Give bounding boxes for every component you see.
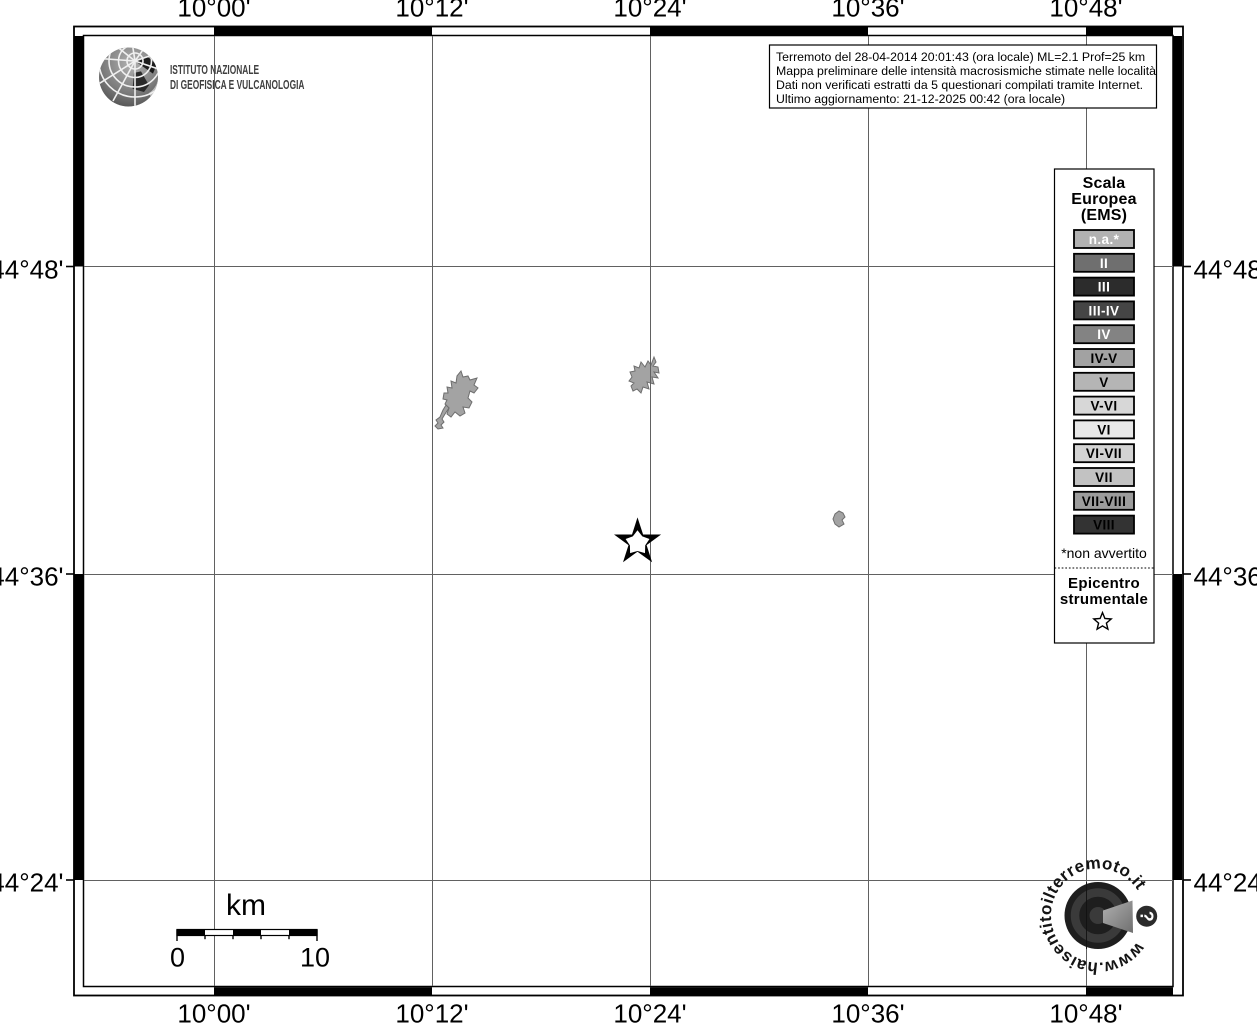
svg-text:VIII: VIII	[1093, 518, 1115, 533]
svg-text:10°24': 10°24'	[613, 0, 686, 23]
svg-text:VI: VI	[1097, 422, 1111, 437]
svg-text:?: ?	[1136, 911, 1156, 922]
svg-text:ISTITUTO NAZIONALE: ISTITUTO NAZIONALE	[170, 63, 259, 77]
svg-text:Mappa preliminare delle intens: Mappa preliminare delle intensità macros…	[776, 64, 1156, 78]
svg-text:0: 0	[170, 943, 185, 973]
svg-text:10°12': 10°12'	[395, 0, 468, 23]
svg-text:Ultimo aggiornamento: 21-12-20: Ultimo aggiornamento: 21-12-2025 00:42 (…	[776, 92, 1065, 106]
svg-text:III-IV: III-IV	[1089, 303, 1120, 318]
svg-text:44°48': 44°48'	[0, 255, 64, 285]
svg-text:44°36': 44°36'	[1194, 562, 1257, 592]
svg-text:V-VI: V-VI	[1090, 399, 1117, 414]
svg-text:Scala: Scala	[1083, 175, 1126, 192]
svg-text:Epicentro: Epicentro	[1068, 575, 1140, 592]
svg-text:VI-VII: VI-VII	[1086, 446, 1122, 461]
svg-text:IV: IV	[1097, 327, 1111, 342]
svg-text:10°48': 10°48'	[1049, 999, 1122, 1025]
svg-text:44°48': 44°48'	[1194, 255, 1257, 285]
svg-text:44°36': 44°36'	[0, 562, 64, 592]
svg-text:(EMS): (EMS)	[1081, 207, 1127, 224]
svg-text:44°24': 44°24'	[1194, 868, 1257, 898]
svg-text:10: 10	[300, 943, 330, 973]
svg-text:km: km	[226, 889, 266, 922]
svg-text:VII-VIII: VII-VIII	[1082, 494, 1126, 509]
svg-text:10°48': 10°48'	[1049, 0, 1122, 23]
svg-text:Dati non verificati estratti d: Dati non verificati estratti da 5 questi…	[776, 78, 1143, 92]
svg-text:strumentale: strumentale	[1060, 591, 1148, 608]
svg-text:10°00': 10°00'	[177, 0, 250, 23]
svg-text:III: III	[1098, 280, 1110, 295]
svg-text:10°36': 10°36'	[831, 999, 904, 1025]
svg-text:44°24': 44°24'	[0, 868, 64, 898]
svg-text:II: II	[1100, 256, 1108, 271]
svg-text:10°36': 10°36'	[831, 0, 904, 23]
svg-text:V: V	[1099, 375, 1108, 390]
svg-text:IV-V: IV-V	[1090, 351, 1117, 366]
svg-text:n.a.*: n.a.*	[1089, 232, 1120, 247]
svg-text:DI GEOFISICA E VULCANOLOGIA: DI GEOFISICA E VULCANOLOGIA	[170, 78, 304, 92]
svg-text:Europea: Europea	[1071, 191, 1136, 208]
svg-text:VII: VII	[1095, 470, 1113, 485]
svg-text:10°12': 10°12'	[395, 999, 468, 1025]
svg-text:10°24': 10°24'	[613, 999, 686, 1025]
svg-text:*non avvertito: *non avvertito	[1061, 545, 1147, 561]
svg-text:Terremoto del 28-04-2014 20:01: Terremoto del 28-04-2014 20:01:43 (ora l…	[776, 50, 1145, 64]
svg-text:10°00': 10°00'	[177, 999, 250, 1025]
